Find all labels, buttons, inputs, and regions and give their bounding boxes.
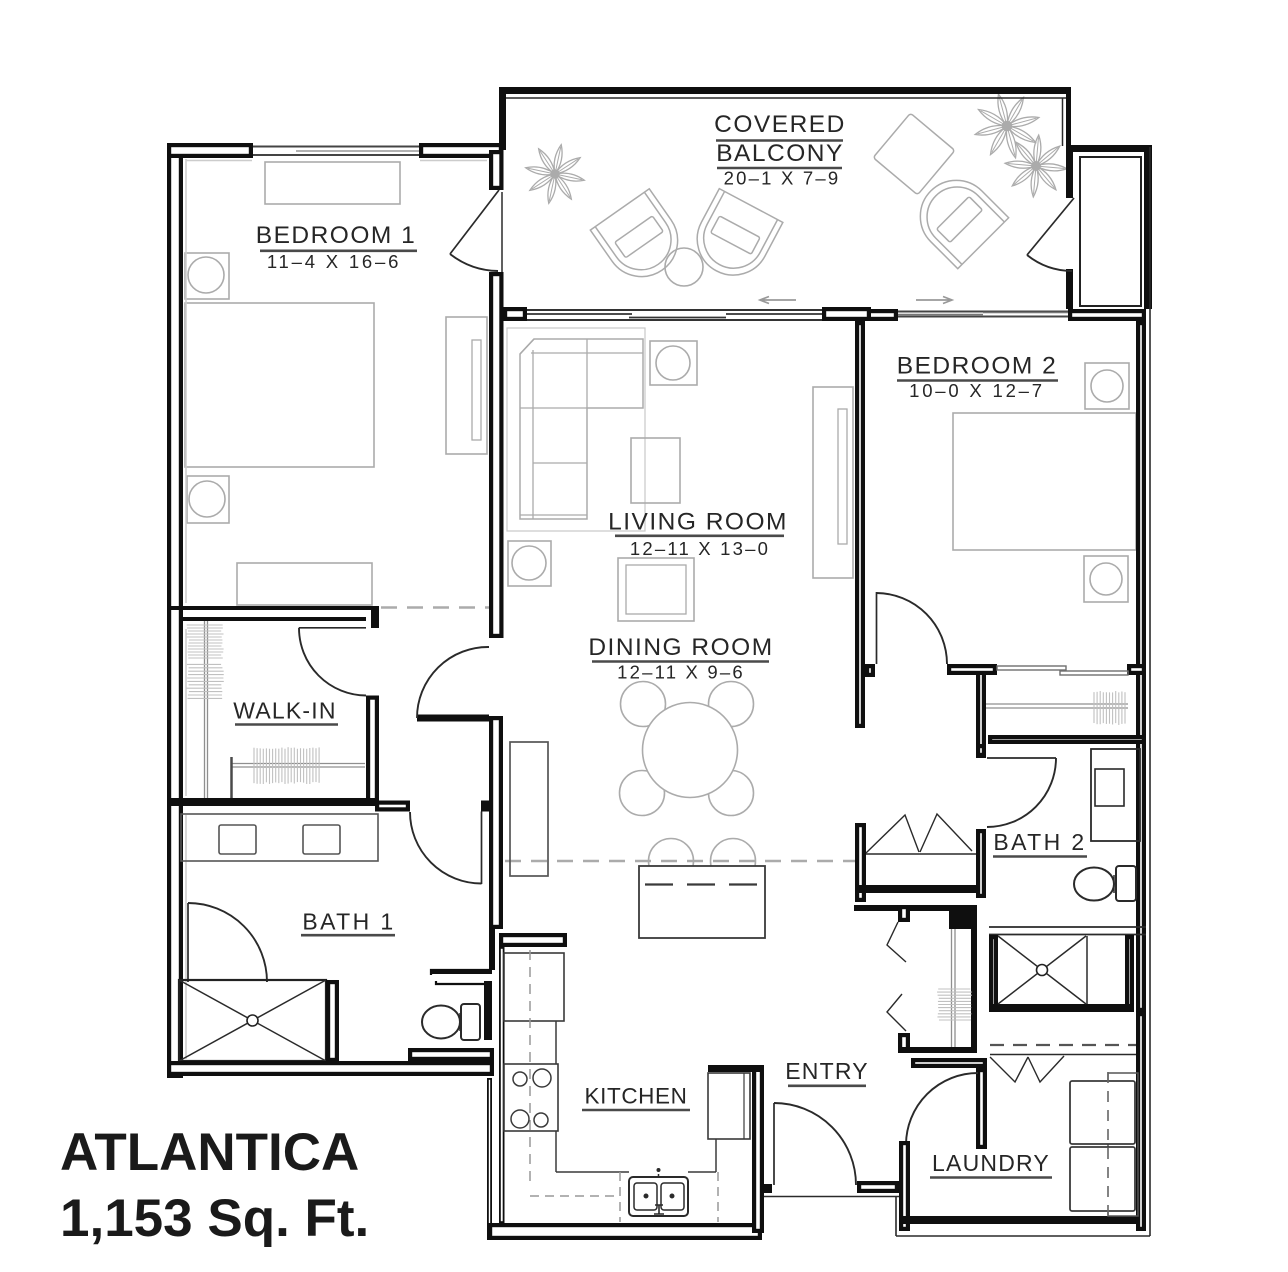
svg-text:20–1 X 7–9: 20–1 X 7–9 <box>724 168 841 189</box>
svg-text:BALCONY: BALCONY <box>716 140 844 167</box>
svg-text:BEDROOM 1: BEDROOM 1 <box>256 222 417 249</box>
svg-text:KITCHEN: KITCHEN <box>585 1084 688 1109</box>
svg-text:1,153 Sq. Ft.: 1,153 Sq. Ft. <box>60 1189 369 1248</box>
svg-text:COVERED: COVERED <box>714 111 846 138</box>
svg-text:ENTRY: ENTRY <box>785 1058 869 1084</box>
svg-text:12–11 X 13–0: 12–11 X 13–0 <box>630 538 770 559</box>
svg-text:BATH 1: BATH 1 <box>302 909 395 935</box>
svg-text:LAUNDRY: LAUNDRY <box>932 1150 1050 1176</box>
svg-text:LIVING ROOM: LIVING ROOM <box>608 509 788 536</box>
svg-text:12–11 X 9–6: 12–11 X 9–6 <box>617 662 745 683</box>
svg-text:BATH 2: BATH 2 <box>993 829 1086 855</box>
svg-text:11–4 X 16–6: 11–4 X 16–6 <box>267 251 401 272</box>
svg-text:DINING ROOM: DINING ROOM <box>588 634 773 661</box>
svg-text:WALK-IN: WALK-IN <box>233 698 336 724</box>
svg-text:10–0 X 12–7: 10–0 X 12–7 <box>909 380 1045 401</box>
svg-text:BEDROOM 2: BEDROOM 2 <box>897 353 1058 380</box>
svg-text:ATLANTICA: ATLANTICA <box>60 1123 359 1182</box>
